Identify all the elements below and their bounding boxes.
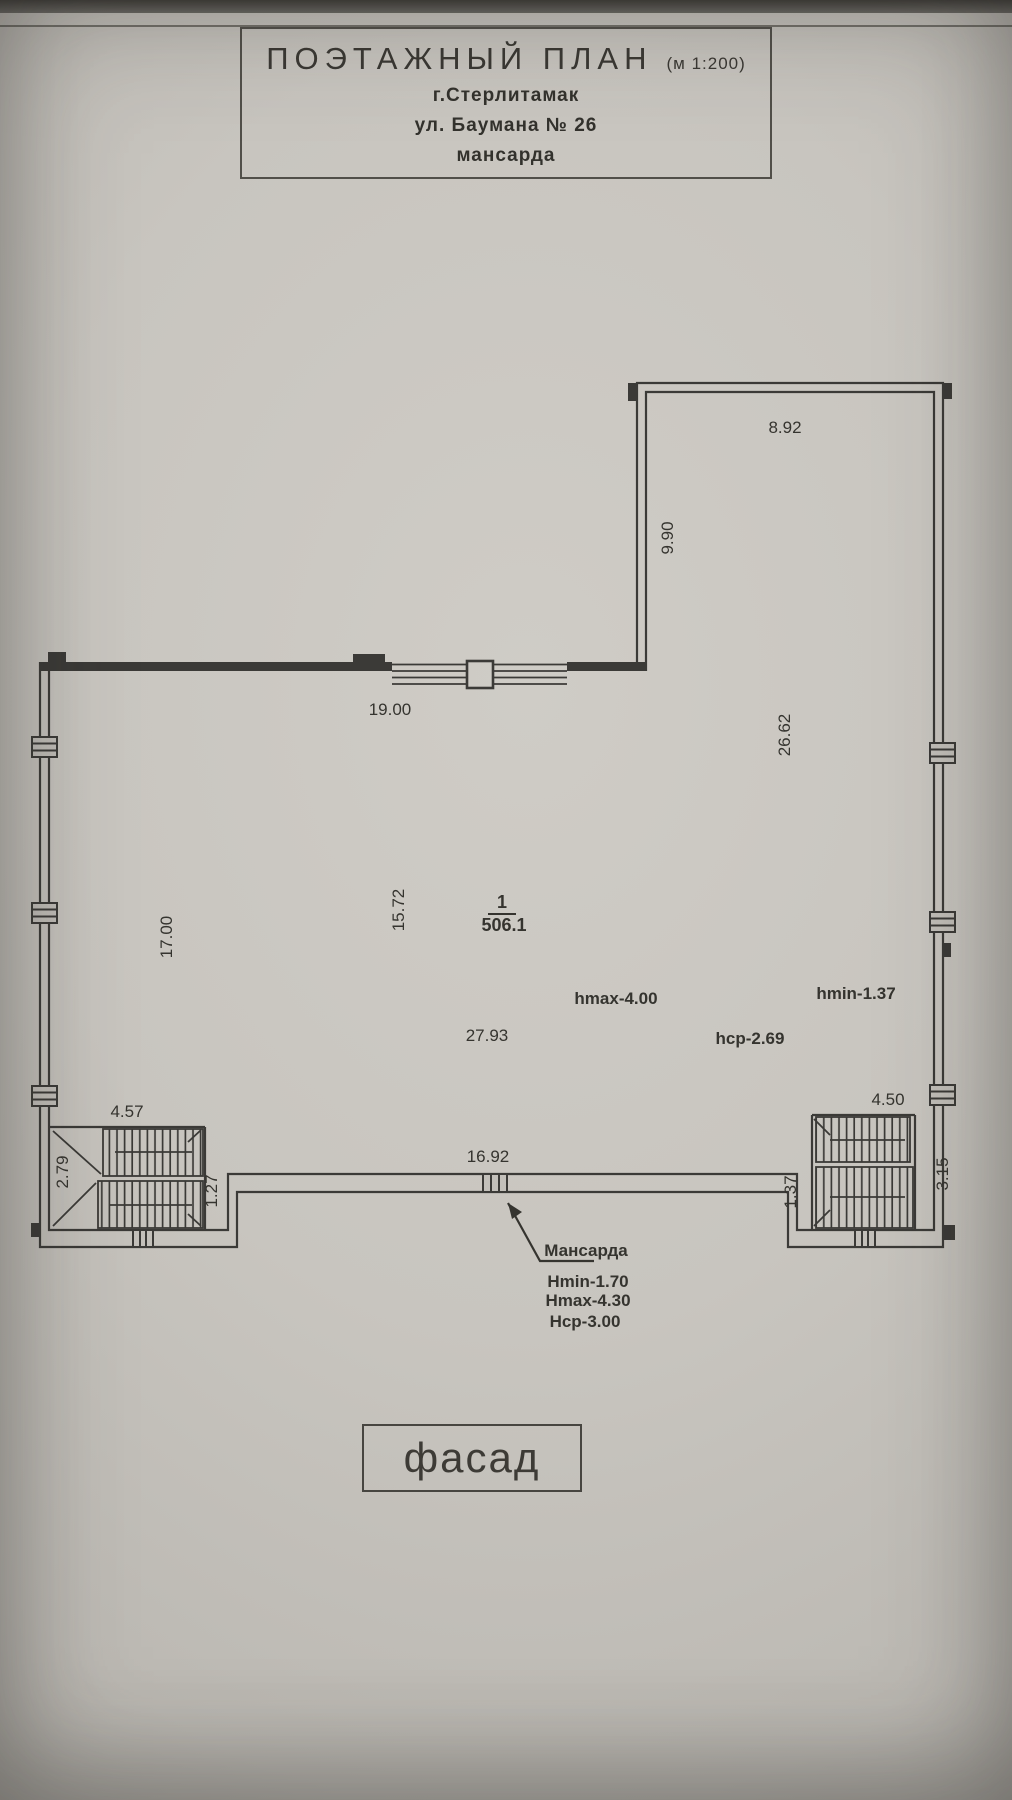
callout-title: Мансарда [544, 1241, 628, 1260]
left-stairs [49, 1127, 205, 1230]
dim-left-stairs-left: 2.79 [53, 1155, 72, 1188]
callout-arrowhead [508, 1203, 522, 1219]
floor-plan-photo: ПОЭТАЖНЫЙ ПЛАН(м 1:200) г.Стерлитамак ул… [0, 0, 1012, 1800]
right-wall-window-1 [930, 743, 955, 763]
right-wall-window-3 [930, 1085, 955, 1105]
main-top-wall-left [40, 662, 392, 671]
dim-top-wing-height: 9.90 [658, 521, 677, 554]
dim-top-wing-width: 8.92 [768, 418, 801, 437]
dim-interior-width: 27.93 [466, 1026, 509, 1045]
facade-label: фасад [404, 1434, 541, 1482]
facade-label-box: фасад [362, 1424, 582, 1492]
main-top-wall-right [567, 662, 646, 671]
corner-tabs [31, 383, 955, 1240]
hmax-label: hmax-4.00 [574, 989, 657, 1008]
dim-right-stairs-right: 3.15 [933, 1157, 952, 1190]
window-pier [467, 661, 493, 688]
room-area: 506.1 [481, 915, 526, 935]
top-window-glazing [392, 665, 567, 685]
height-labels: hmax-4.00 hmin-1.37 hср-2.69 [574, 984, 895, 1048]
dim-main-top: 19.00 [369, 700, 412, 719]
bottom-center-pier [483, 1174, 507, 1192]
callout-hmax: Hmax-4.30 [545, 1291, 630, 1310]
hmin-label: hmin-1.37 [816, 984, 895, 1003]
dim-left-stairs-width: 4.57 [110, 1102, 143, 1121]
room-number: 1 [497, 892, 507, 912]
bottom-right-pier [855, 1230, 875, 1247]
dim-right-stairs-left: 1.37 [781, 1175, 800, 1208]
dim-interior-depth: 15.72 [389, 889, 408, 932]
dim-right-side: 26.62 [775, 714, 794, 757]
callout-hmin: Hmin-1.70 [547, 1272, 628, 1291]
dim-bottom-center: 16.92 [467, 1147, 510, 1166]
left-wall-window-2 [32, 903, 57, 923]
top-wall-bump [353, 654, 385, 662]
right-wall-window-2 [930, 912, 955, 932]
mansarda-callout: Мансарда Hmin-1.70 Hmax-4.30 Hср-3.00 [508, 1203, 631, 1331]
inner-wall-line [49, 392, 934, 1230]
dim-left-side: 17.00 [157, 916, 176, 959]
right-stairs [812, 1115, 915, 1230]
left-wall-window-3 [32, 1086, 57, 1106]
room-label: 1 506.1 [481, 892, 526, 935]
callout-havg: Hср-3.00 [550, 1312, 621, 1331]
left-wall-window-1 [32, 737, 57, 757]
bottom-left-pier [133, 1230, 153, 1247]
dim-left-stairs-right: 1.27 [202, 1174, 221, 1207]
havg-label: hср-2.69 [716, 1029, 785, 1048]
outer-wall-line [40, 383, 943, 1247]
dim-right-stairs-width: 4.50 [871, 1090, 904, 1109]
dimension-labels: 8.92 9.90 26.62 19.00 17.00 15.72 27.93 … [53, 418, 952, 1209]
plan-drawing: 8.92 9.90 26.62 19.00 17.00 15.72 27.93 … [0, 0, 1012, 1800]
